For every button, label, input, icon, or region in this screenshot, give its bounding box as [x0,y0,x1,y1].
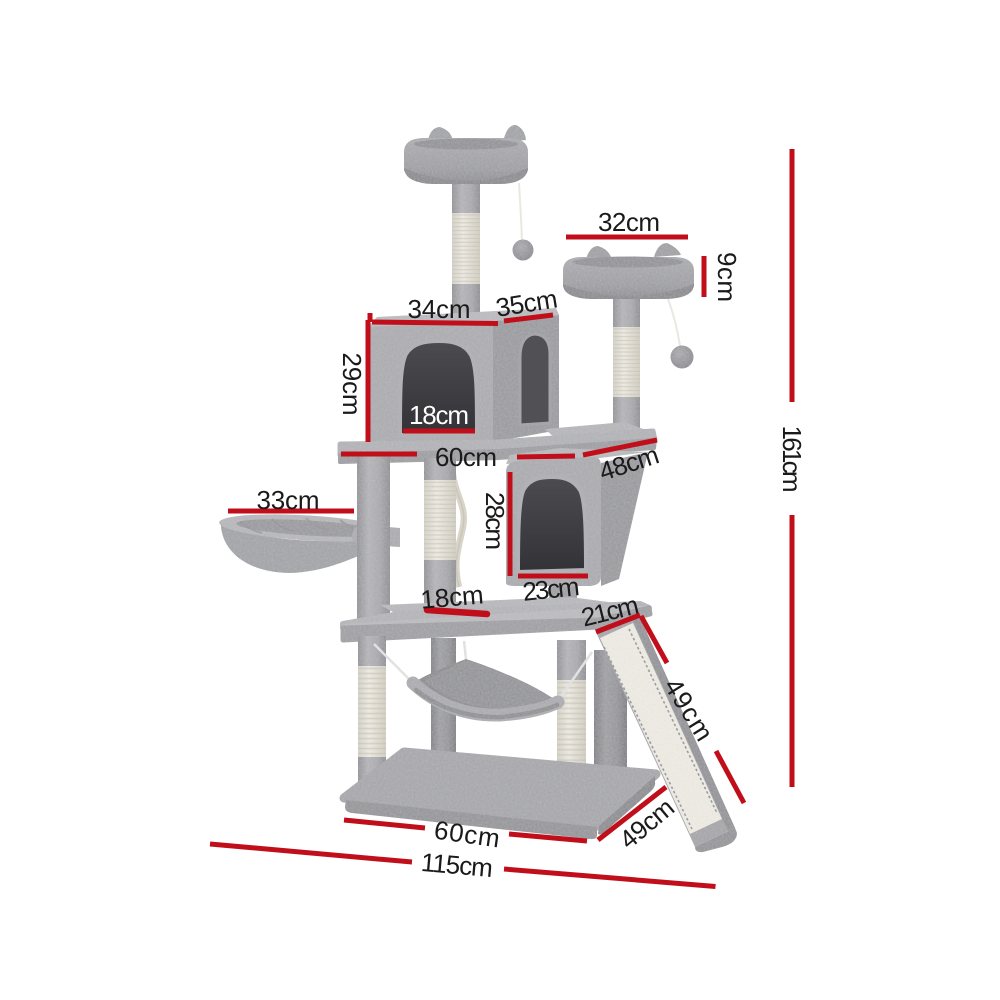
svg-text:18cm: 18cm [409,400,469,430]
svg-text:18cm: 18cm [419,579,484,614]
svg-text:29cm: 29cm [337,353,367,416]
svg-text:34cm: 34cm [408,294,471,324]
svg-text:23cm: 23cm [521,571,581,607]
svg-text:115cm: 115cm [420,847,494,883]
svg-text:60cm: 60cm [435,442,497,472]
svg-text:28cm: 28cm [480,492,510,550]
svg-text:33cm: 33cm [257,485,320,515]
svg-text:9cm: 9cm [712,252,742,302]
svg-text:32cm: 32cm [598,207,660,237]
svg-text:161cm: 161cm [777,426,807,493]
